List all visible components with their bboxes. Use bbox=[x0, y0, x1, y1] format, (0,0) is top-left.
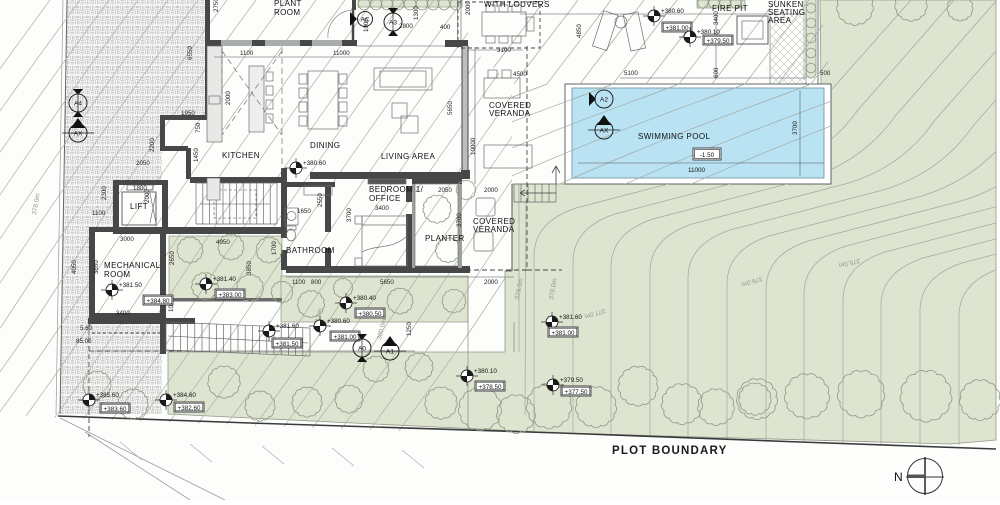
svg-text:5100: 5100 bbox=[624, 70, 638, 77]
svg-text:LIVING AREA: LIVING AREA bbox=[381, 152, 435, 161]
svg-text:10000: 10000 bbox=[470, 137, 477, 155]
svg-text:3000: 3000 bbox=[120, 236, 134, 243]
svg-text:ROOM: ROOM bbox=[274, 8, 301, 17]
svg-text:+384.80: +384.80 bbox=[147, 298, 170, 305]
svg-text:3400: 3400 bbox=[116, 310, 130, 317]
svg-text:+378.50: +378.50 bbox=[479, 384, 502, 391]
svg-text:1700: 1700 bbox=[271, 241, 278, 255]
svg-text:+379.50: +379.50 bbox=[560, 377, 583, 384]
svg-text:BATHROOM: BATHROOM bbox=[286, 246, 335, 255]
svg-text:2300: 2300 bbox=[101, 186, 108, 200]
svg-text:AC: AC bbox=[360, 17, 369, 24]
svg-text:DINING: DINING bbox=[310, 141, 340, 150]
svg-text:3400: 3400 bbox=[713, 11, 720, 25]
svg-text:MECHANICAL: MECHANICAL bbox=[104, 261, 161, 270]
svg-text:500: 500 bbox=[820, 70, 831, 77]
svg-text:3100: 3100 bbox=[497, 47, 511, 54]
svg-text:2750: 2750 bbox=[213, 0, 220, 12]
svg-text:AX: AX bbox=[600, 128, 609, 135]
svg-text:400: 400 bbox=[440, 24, 451, 31]
svg-text:PLANT: PLANT bbox=[274, 0, 302, 8]
svg-text:VERANDA: VERANDA bbox=[489, 109, 531, 118]
svg-text:+383.00: +383.00 bbox=[219, 292, 242, 299]
svg-text:WITH LOUVERS: WITH LOUVERS bbox=[484, 0, 550, 9]
svg-text:5650: 5650 bbox=[447, 101, 454, 115]
svg-text:+381.00: +381.00 bbox=[552, 330, 575, 337]
svg-text:2550: 2550 bbox=[317, 193, 324, 207]
svg-text:+381.60: +381.60 bbox=[276, 323, 299, 330]
svg-text:+381.50: +381.50 bbox=[276, 341, 299, 348]
svg-text:+380.60: +380.60 bbox=[327, 318, 350, 325]
svg-text:2000: 2000 bbox=[225, 91, 232, 105]
svg-text:750: 750 bbox=[195, 122, 202, 133]
svg-text:1450: 1450 bbox=[193, 148, 200, 162]
svg-text:SWIMMING POOL: SWIMMING POOL bbox=[638, 132, 710, 141]
svg-text:3700: 3700 bbox=[456, 213, 463, 227]
svg-text:600: 600 bbox=[713, 67, 720, 78]
svg-text:6550: 6550 bbox=[187, 46, 194, 60]
svg-text:11000: 11000 bbox=[688, 167, 706, 174]
svg-text:3700: 3700 bbox=[346, 208, 353, 222]
svg-text:2000: 2000 bbox=[484, 279, 498, 286]
svg-text:PLOT BOUNDARY: PLOT BOUNDARY bbox=[612, 445, 727, 457]
svg-text:2200: 2200 bbox=[149, 138, 156, 152]
svg-text:1100: 1100 bbox=[240, 50, 254, 57]
svg-text:+380.60: +380.60 bbox=[303, 160, 326, 167]
svg-text:OFFICE: OFFICE bbox=[369, 194, 401, 203]
svg-text:A2: A2 bbox=[600, 97, 608, 104]
svg-text:+379.50: +379.50 bbox=[707, 38, 730, 45]
svg-text:1250: 1250 bbox=[406, 322, 413, 336]
svg-text:KITCHEN: KITCHEN bbox=[222, 151, 260, 160]
svg-text:+381.40: +381.40 bbox=[213, 276, 236, 283]
svg-text:4850: 4850 bbox=[576, 24, 583, 38]
svg-text:1950: 1950 bbox=[181, 110, 195, 117]
svg-text:PLANTER: PLANTER bbox=[425, 234, 465, 243]
svg-text:+381.00: +381.00 bbox=[334, 334, 357, 341]
svg-text:1100: 1100 bbox=[92, 210, 106, 217]
svg-text:3850: 3850 bbox=[246, 261, 253, 275]
svg-text:N: N bbox=[894, 470, 903, 484]
svg-text:-1.50: -1.50 bbox=[700, 152, 715, 159]
svg-text:+381.60: +381.60 bbox=[559, 314, 582, 321]
svg-text:+380.40: +380.40 bbox=[353, 295, 376, 302]
svg-text:+377.50: +377.50 bbox=[565, 389, 588, 396]
svg-text:3400: 3400 bbox=[375, 205, 389, 212]
svg-text:+384.60: +384.60 bbox=[173, 392, 196, 399]
svg-text:+383.60: +383.60 bbox=[104, 406, 127, 413]
svg-text:AREA: AREA bbox=[768, 16, 792, 25]
svg-text:4950: 4950 bbox=[216, 239, 230, 246]
svg-text:5.60: 5.60 bbox=[80, 325, 93, 332]
svg-text:+382.60: +382.60 bbox=[178, 405, 201, 412]
svg-text:2650: 2650 bbox=[169, 251, 176, 265]
svg-text:4500: 4500 bbox=[513, 71, 527, 78]
svg-text:+381.50: +381.50 bbox=[119, 282, 142, 289]
svg-text:ROOM: ROOM bbox=[104, 270, 131, 279]
svg-text:11000: 11000 bbox=[333, 50, 350, 57]
svg-text:VERANDA: VERANDA bbox=[473, 225, 515, 234]
svg-text:1100: 1100 bbox=[292, 279, 306, 286]
svg-text:+381.00: +381.00 bbox=[666, 25, 689, 32]
svg-text:5650: 5650 bbox=[380, 279, 394, 286]
svg-text:800: 800 bbox=[311, 279, 322, 286]
svg-text:3700: 3700 bbox=[792, 121, 799, 135]
svg-text:2000: 2000 bbox=[465, 1, 472, 15]
svg-text:BEDROOM 1/: BEDROOM 1/ bbox=[369, 185, 424, 194]
svg-text:85.00: 85.00 bbox=[76, 338, 92, 345]
svg-text:2000: 2000 bbox=[484, 187, 498, 194]
svg-text:1650: 1650 bbox=[297, 208, 311, 215]
svg-text:2050: 2050 bbox=[136, 160, 150, 167]
svg-text:3650: 3650 bbox=[93, 260, 100, 274]
svg-text:+380.50: +380.50 bbox=[359, 311, 382, 318]
svg-text:+380.10: +380.10 bbox=[474, 368, 497, 375]
svg-text:+380.60: +380.60 bbox=[661, 8, 684, 15]
svg-text:2000: 2000 bbox=[144, 189, 151, 203]
svg-text:1300: 1300 bbox=[413, 6, 420, 20]
svg-text:4050: 4050 bbox=[71, 260, 78, 274]
svg-text:+385.60: +385.60 bbox=[96, 392, 119, 399]
svg-text:AX: AX bbox=[74, 131, 83, 138]
svg-text:2050: 2050 bbox=[438, 187, 452, 194]
svg-text:A1: A1 bbox=[386, 349, 394, 356]
